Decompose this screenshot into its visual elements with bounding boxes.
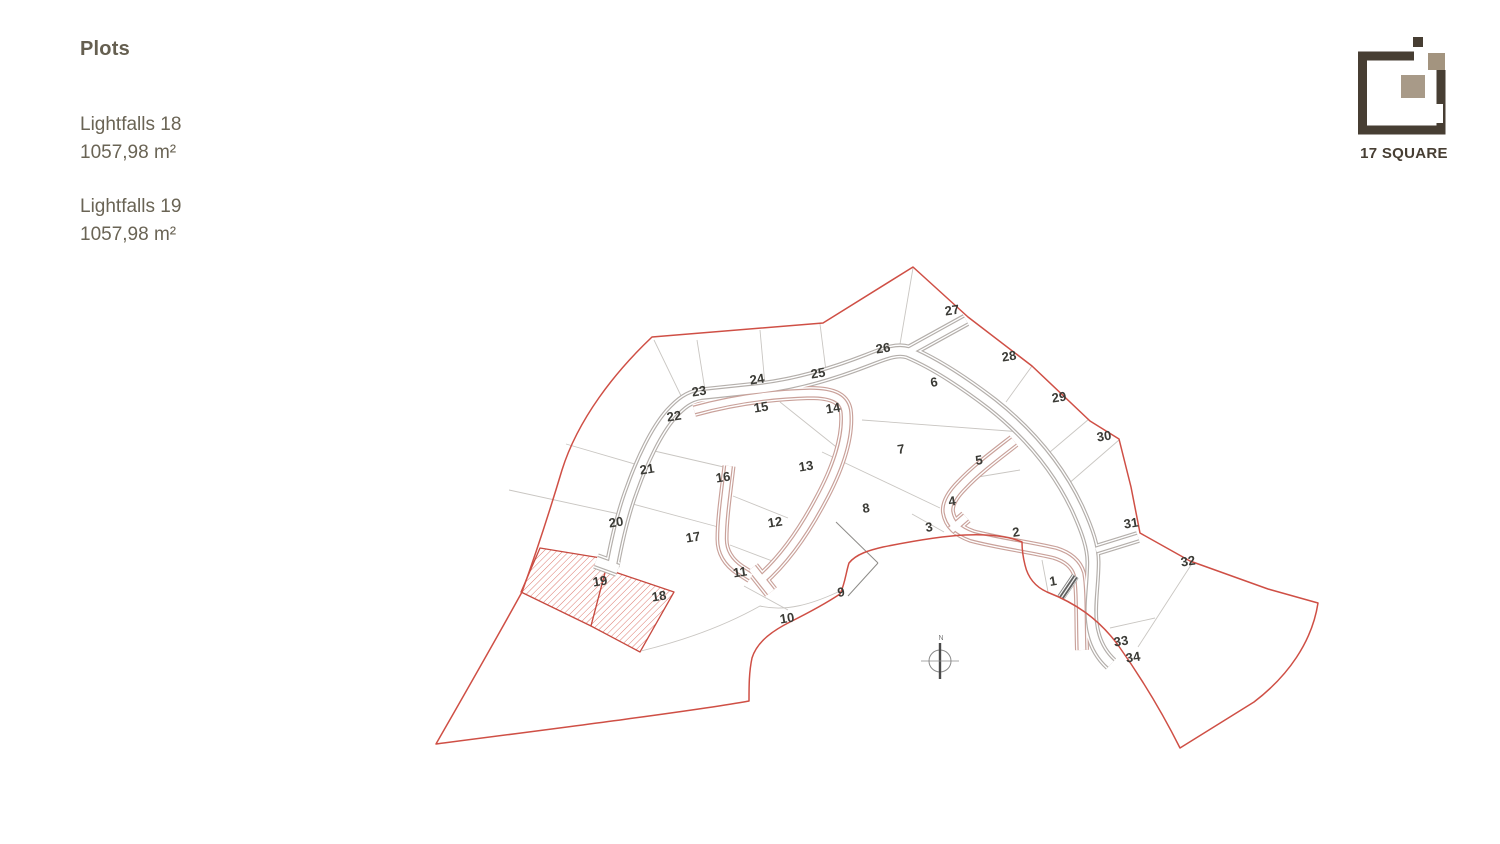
- plot-label-19[interactable]: 19: [592, 572, 609, 589]
- plot-label-27[interactable]: 27: [944, 301, 961, 318]
- plot-label-1[interactable]: 1: [1048, 573, 1057, 589]
- parcel-line: [1042, 560, 1048, 592]
- site-boundary: [436, 267, 1318, 748]
- plot-label-34[interactable]: 34: [1125, 648, 1142, 665]
- plot-label-31[interactable]: 31: [1123, 514, 1140, 531]
- parcel-line: [566, 444, 645, 467]
- plot-label-20[interactable]: 20: [608, 513, 625, 530]
- parcel-line: [654, 340, 684, 402]
- parcel-line: [1067, 440, 1119, 485]
- plot-label-18[interactable]: 18: [651, 587, 668, 604]
- plot-label-2[interactable]: 2: [1011, 524, 1020, 540]
- plot-label-23[interactable]: 23: [691, 382, 708, 399]
- road: [694, 393, 846, 580]
- parcel-line: [1050, 419, 1089, 452]
- plot-label-12[interactable]: 12: [767, 513, 784, 530]
- plot-label-5[interactable]: 5: [974, 452, 983, 468]
- compass-north-label: N: [938, 635, 943, 642]
- parcel-line: [1006, 366, 1032, 402]
- plot-label-10[interactable]: 10: [779, 609, 796, 626]
- plot-label-17[interactable]: 17: [685, 528, 702, 545]
- plot-label-28[interactable]: 28: [1001, 347, 1018, 364]
- plot-label-30[interactable]: 30: [1096, 427, 1113, 444]
- plot-label-11[interactable]: 11: [732, 564, 748, 581]
- plot-label-3[interactable]: 3: [924, 519, 933, 535]
- plot-label-9[interactable]: 9: [836, 584, 845, 600]
- plot-label-6[interactable]: 6: [929, 374, 938, 390]
- plot-label-29[interactable]: 29: [1051, 388, 1068, 405]
- plot-label-21[interactable]: 21: [639, 460, 656, 477]
- plot-label-13[interactable]: 13: [798, 457, 815, 474]
- plot-label-32[interactable]: 32: [1180, 552, 1197, 569]
- parcel-line: [899, 268, 913, 350]
- parcel-line: [1138, 562, 1193, 647]
- plot-label-16[interactable]: 16: [715, 468, 732, 485]
- site-plan-map: N123456789101112131415161718192021222324…: [0, 0, 1500, 844]
- plot-label-33[interactable]: 33: [1113, 632, 1130, 649]
- parcel-line: [641, 592, 838, 651]
- plot-label-7[interactable]: 7: [896, 441, 905, 457]
- parcel-line: [509, 490, 619, 514]
- page: Plots Lightfalls 18 1057,98 m² Lightfall…: [0, 0, 1500, 844]
- parcel-line: [629, 503, 722, 528]
- plot-label-26[interactable]: 26: [875, 339, 892, 356]
- road: [908, 320, 966, 352]
- plot-label-25[interactable]: 25: [810, 364, 827, 381]
- plot-label-8[interactable]: 8: [861, 500, 870, 516]
- parcel-line: [1110, 618, 1155, 628]
- parcel-line: [650, 450, 728, 468]
- plot-label-22[interactable]: 22: [666, 407, 683, 424]
- plot-label-15[interactable]: 15: [753, 398, 770, 415]
- parcel-line: [848, 563, 878, 596]
- parcel-line: [862, 420, 1022, 432]
